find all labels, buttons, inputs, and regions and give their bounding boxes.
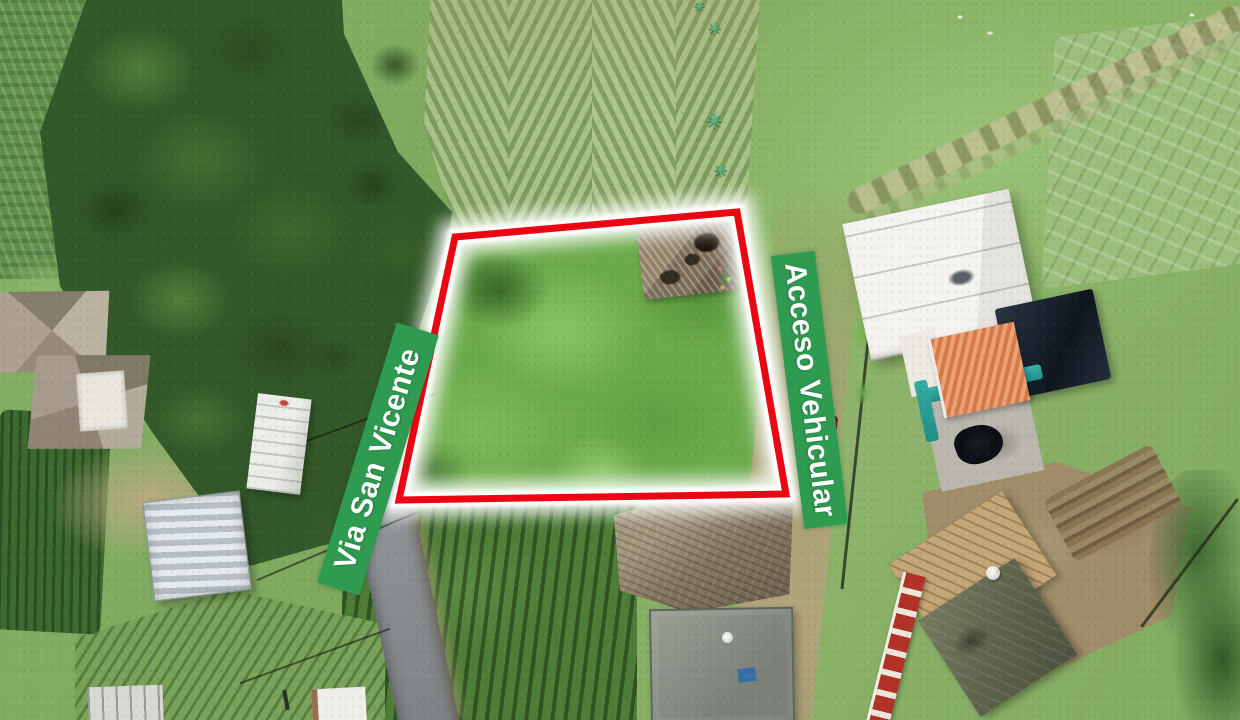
aerial-photo: ✳ ✳ ✳ ✳ Via San Vicente Acceso Vehicular — [0, 0, 1240, 720]
property-boundary — [0, 0, 1240, 720]
